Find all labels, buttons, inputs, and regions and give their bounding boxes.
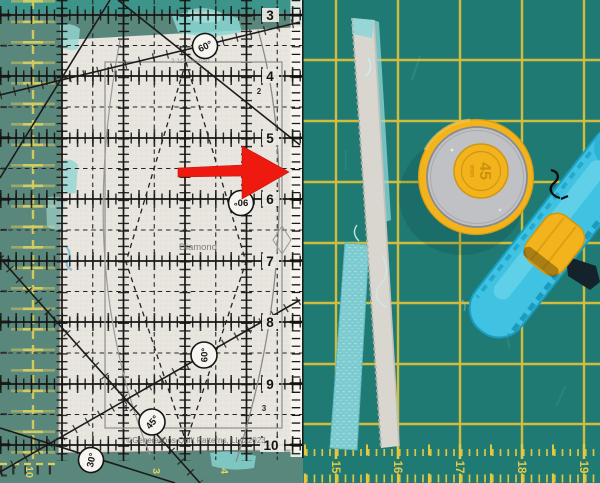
size-note-label: 3 1/2 finished bbox=[171, 58, 210, 65]
blade-assembly: 45 mm bbox=[419, 120, 534, 235]
ruler-number-4: 4 bbox=[266, 69, 274, 84]
ruler-number-3: 3 bbox=[266, 8, 274, 23]
badge-90: 90° bbox=[234, 197, 249, 208]
ruler-number-5: 5 bbox=[266, 131, 274, 146]
mat-number-16: 16 bbox=[391, 461, 403, 474]
ruler-number-6: 6 bbox=[266, 192, 274, 207]
ruler-number-8: 8 bbox=[266, 315, 274, 330]
blade-size-unit: mm bbox=[468, 165, 475, 177]
mat-number-17: 17 bbox=[453, 461, 465, 474]
ruler-number-10: 10 bbox=[263, 438, 278, 453]
photo-canvas: 15 16 17 18 19 10 3 4 bbox=[0, 0, 600, 483]
blade-size-number: 45 bbox=[476, 162, 493, 180]
badge-60-low: 60° bbox=[200, 348, 211, 363]
ruler-number-9: 9 bbox=[266, 377, 274, 392]
ruler-label-1: 1 bbox=[124, 404, 129, 413]
ruler-label-2: 2 bbox=[257, 87, 262, 96]
copyright-label: ©Generations Quilt Patterns, LLC 2023 bbox=[126, 436, 266, 445]
mat-number-15: 15 bbox=[329, 461, 341, 474]
ruler-number-7: 7 bbox=[266, 254, 274, 269]
acrylic-ruler: 3 4 5 6 7 8 9 10 2 1 3 60° 9 bbox=[0, 0, 303, 483]
mat-number-18: 18 bbox=[515, 461, 527, 474]
ruler-label-3: 3 bbox=[262, 404, 267, 413]
template-name-label: Diamond bbox=[179, 242, 217, 253]
quilting-photo: 15 16 17 18 19 10 3 4 bbox=[0, 0, 600, 483]
mat-number-19: 19 bbox=[577, 461, 589, 474]
